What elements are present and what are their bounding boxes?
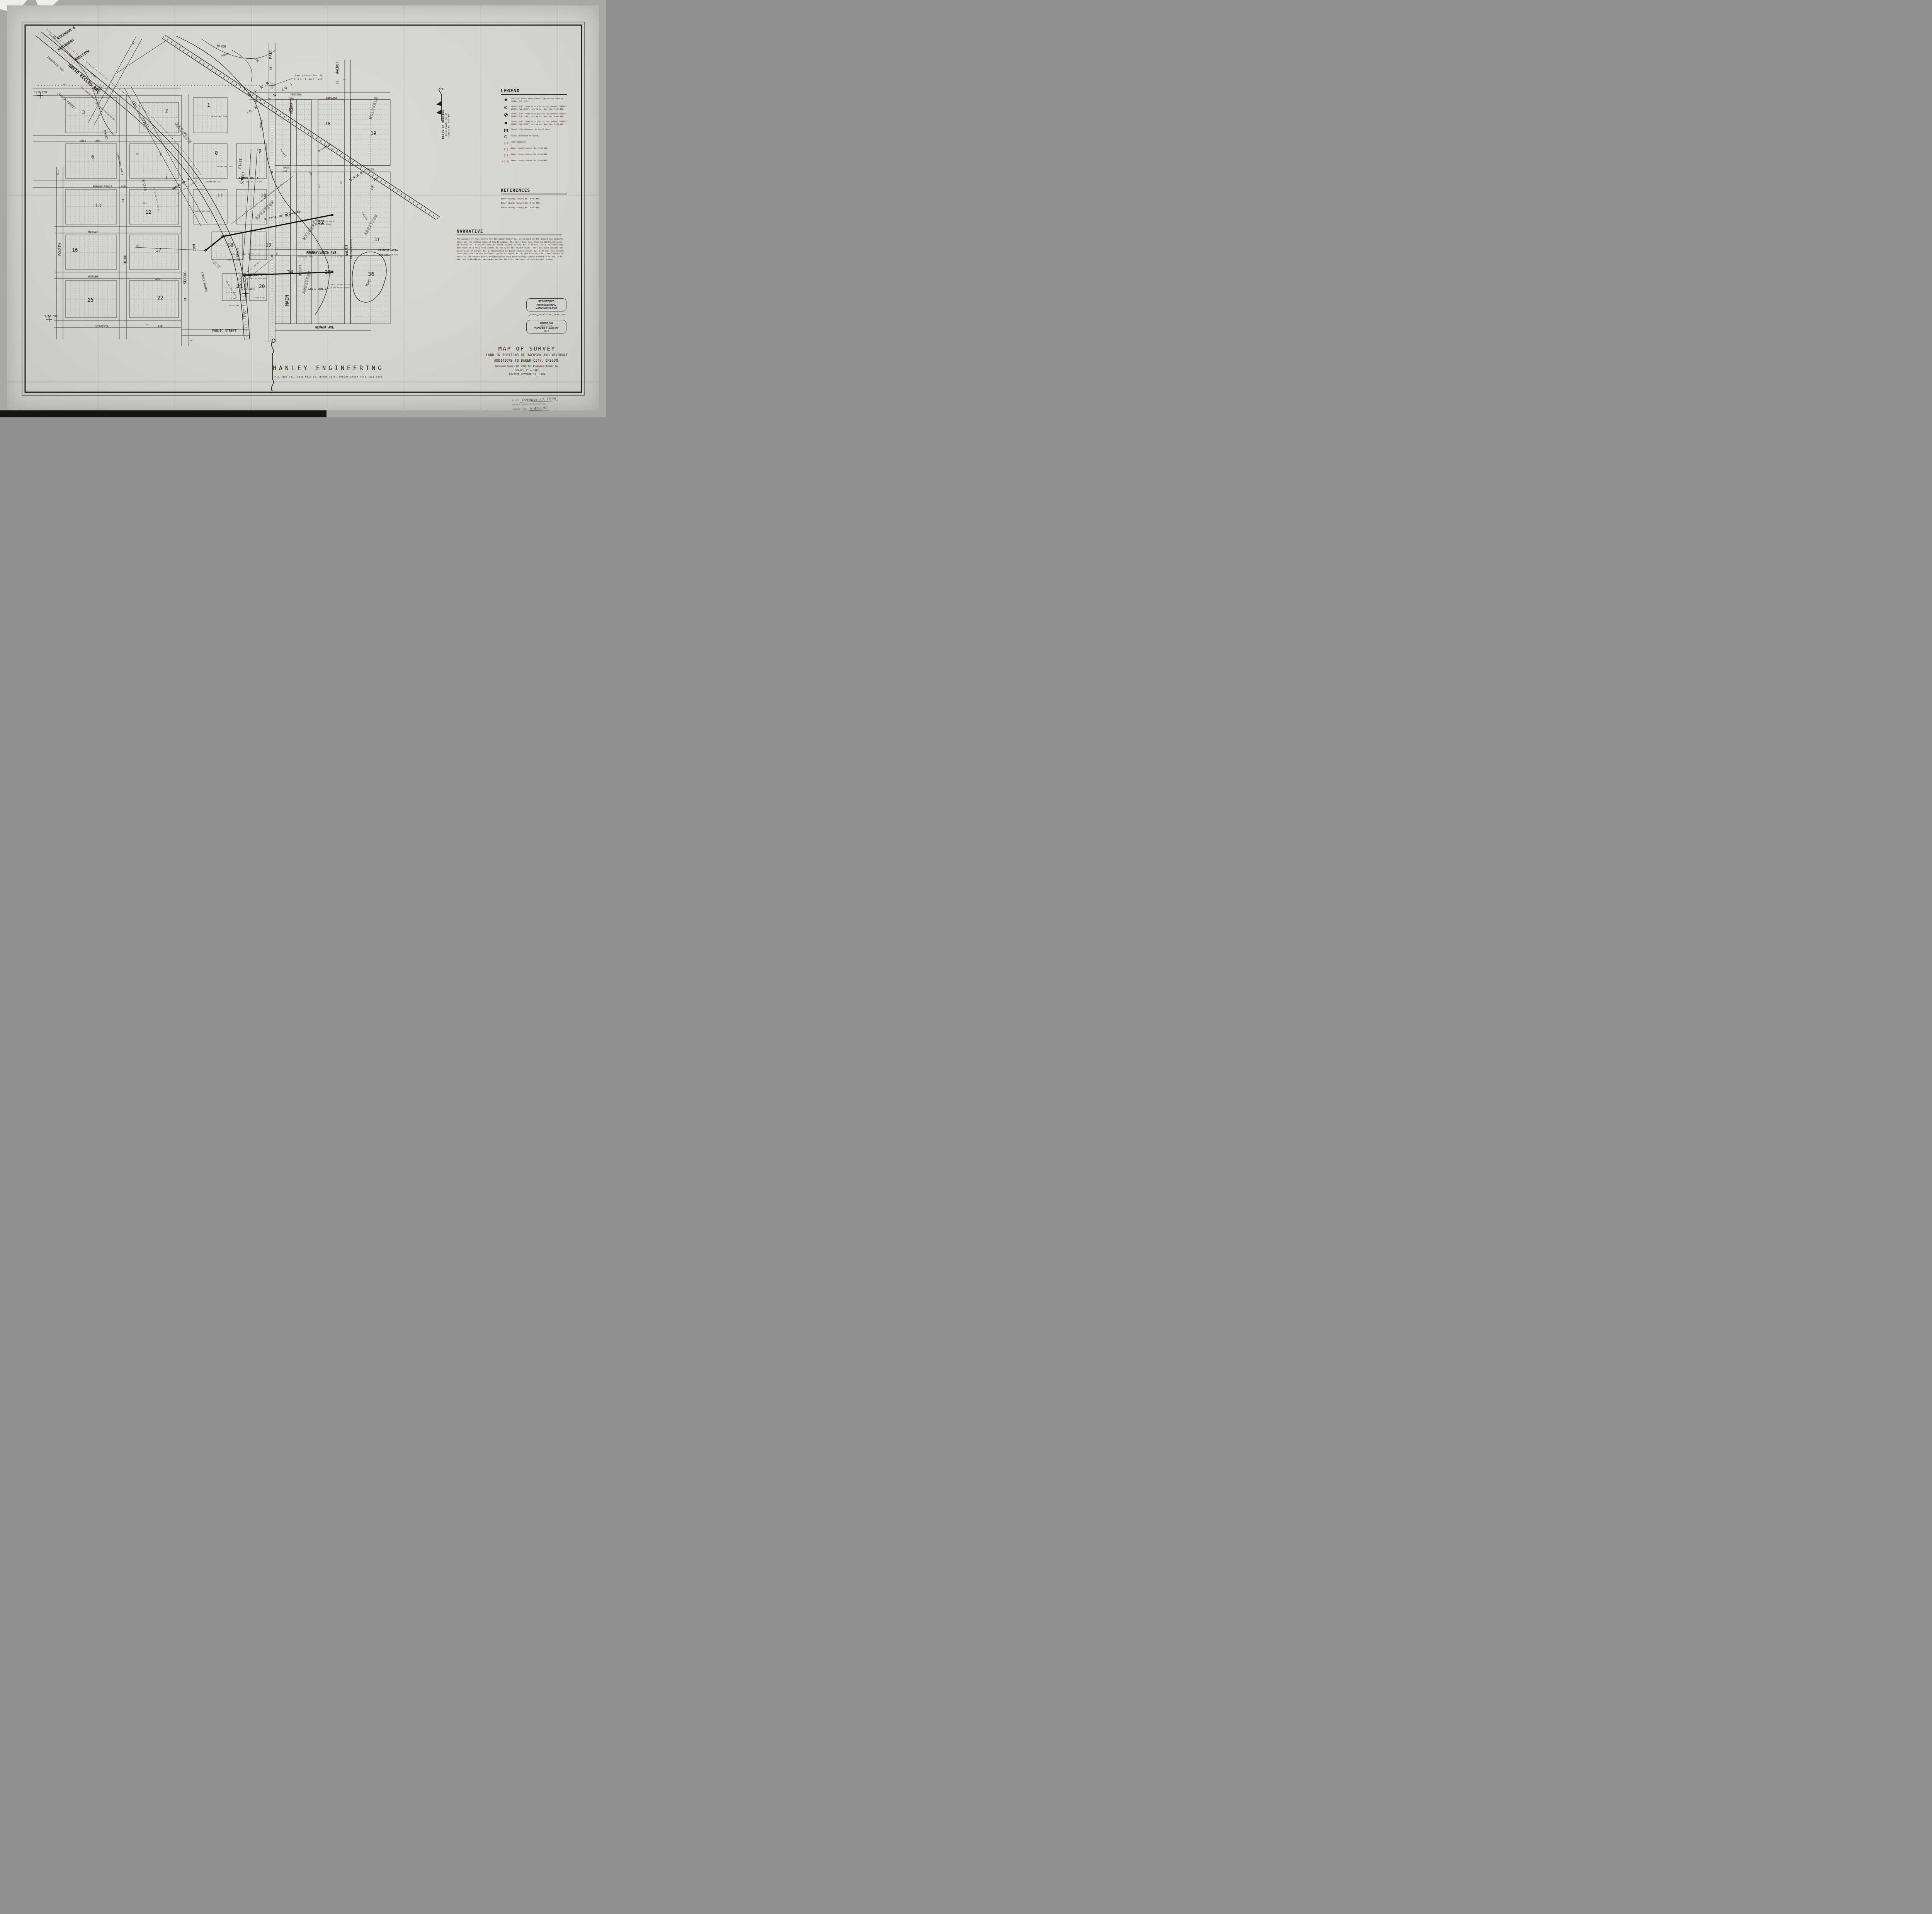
- map-label: N. 77°19' 20" E., 460.80': [264, 210, 302, 221]
- map-label: U.P.R.R.: [349, 170, 365, 182]
- filing-stamp: FILED October 13, 1999 BAKER COUNTY SURV…: [512, 396, 586, 412]
- map-label: VACATED ORD. 2054: [194, 210, 211, 212]
- uprr-ties: [163, 37, 438, 218]
- map-label: 13: [95, 202, 101, 208]
- map-label: 70': [342, 79, 345, 81]
- basis-title: BASIS OF BEARING: [442, 92, 445, 157]
- filed-date-handwritten: October 13, 1999: [520, 397, 558, 403]
- david-eccles-road-edge: [36, 36, 244, 340]
- map-label: 31: [374, 237, 379, 242]
- road-hatching: [38, 34, 247, 340]
- map-label: 17: [288, 107, 293, 112]
- map-label: 1/16 COR.: [44, 315, 59, 318]
- legend-item: Found, monument as noted.: [501, 134, 571, 138]
- stamp-lower-frame: OREGON JULY, 13, 1979 THOMAS J. HANLEY 1…: [526, 320, 566, 333]
- map-label: 6: [91, 154, 94, 160]
- map-label: VIRGINIA: [95, 325, 109, 328]
- map-label: 1/16 COR.: [34, 91, 49, 94]
- map-label: (NON-CONSTRUCTED): [378, 253, 398, 256]
- map-label: (NON-CONSTRUCTED): [350, 239, 352, 260]
- references-panel: REFERENCES Baker County Survey No. 9-40-…: [501, 188, 571, 210]
- legend-item: [ ]Baker County Survey No. 9-40-486.: [501, 153, 571, 157]
- map-label: (100'): [340, 180, 342, 185]
- map-label: THIRD: [123, 255, 127, 265]
- filing-office: BAKER COUNTY SURVEYOR: [512, 402, 586, 406]
- legend-symbol-circledot: [501, 105, 511, 109]
- map-label: ST.: [56, 170, 60, 175]
- map-label: INDIANA: [326, 97, 337, 100]
- map-label: DAVID: [103, 130, 109, 140]
- map-label: 60': [276, 252, 278, 255]
- legend-item: Found, 5/8" rebar with plastic cap marke…: [501, 120, 571, 126]
- map-label: 33': [146, 324, 149, 326]
- map-label: PENNSYLVANIA: [378, 249, 398, 252]
- firm-address: P.O. Box 701, 2043 Main St. BAKER CITY, …: [247, 376, 410, 378]
- map-label: 19: [371, 131, 376, 136]
- basis-line2: Survey No. 9-40-490.: [447, 92, 450, 157]
- legend-item-text: Found, 5/8" rebar with plastic cap marke…: [511, 120, 571, 126]
- reference-item: Baker County Survey No. 9-40-490.: [501, 206, 571, 210]
- map-label: SECOND: [183, 271, 187, 284]
- narrative-text: The purpose of this survey for Ellingson…: [457, 238, 563, 261]
- legend-title: LEGEND: [501, 88, 571, 94]
- stamp-line3: LAND SURVEYOR: [527, 306, 565, 310]
- pond-outline: [352, 252, 386, 302]
- map-label: VACATED ORD. 1728: [211, 116, 227, 117]
- reference-item: Baker County Survey No. 9-40-486.: [501, 201, 571, 205]
- map-label: ((20.00')): [226, 259, 239, 261]
- map-label: NEVADA: [88, 230, 98, 233]
- map-label: 18: [227, 242, 233, 248]
- legend-symbol-dot: [501, 97, 511, 101]
- survey-no-handwritten: 9-40-502: [528, 406, 549, 411]
- map-label: 60': [136, 153, 139, 155]
- map-label: CARY: [131, 100, 138, 109]
- map-label: FIRST: [243, 309, 247, 320]
- legend-symbol-text: (( )): [501, 159, 511, 163]
- surveyor-signature: [526, 311, 566, 318]
- map-label: PENNSYLVANIA: [93, 185, 112, 188]
- map-label: POND: [365, 279, 371, 287]
- map-label: (100'): [165, 175, 167, 180]
- map-label: EAST, 330.37': [308, 288, 330, 291]
- map-label: ADDITION: [74, 49, 90, 62]
- map-label: ST.: [336, 79, 339, 84]
- map-label: 60': [184, 133, 187, 134]
- map-label: MAIN: [269, 50, 272, 59]
- map-label: PUBLIC STREET: [212, 329, 236, 333]
- map-label: V. 117 P. 168: [331, 256, 342, 258]
- firm-block: HANLEY ENGINEERING P.O. Box 701, 2043 Ma…: [247, 365, 410, 378]
- map-label: V.132 P.349: [254, 297, 265, 299]
- stamp-number: 1817: [527, 330, 565, 332]
- legend-item: (( ))Baker County Survey No. 9-40-490.: [501, 159, 571, 163]
- firm-name: HANLEY ENGINEERING: [247, 365, 410, 372]
- map-label: 23: [87, 297, 94, 303]
- map-label: 20: [259, 283, 265, 289]
- legend-item-text: Found, 5/8" rebar with plastic cap marke…: [511, 105, 571, 111]
- map-label: 31: [372, 177, 378, 182]
- map-label: PARCEL NO. A: [172, 177, 190, 191]
- map-label: WABASH: [88, 275, 98, 278]
- map-label: (TRUCK ROUTE): [200, 272, 208, 293]
- map-subtitle-1: LAND IN PORTIONS OF JACKSON AND WILOVALE: [478, 354, 577, 357]
- map-label: VACATED ORD. 2054: [206, 181, 222, 183]
- stamp-state: OREGON: [527, 322, 565, 325]
- map-label: SLOUGH: [90, 72, 97, 78]
- map-label: (50'): [142, 202, 147, 204]
- map-label: RESORT: [299, 265, 302, 276]
- map-label: 34: [287, 269, 293, 275]
- map-label: V.132 P.349: [226, 292, 236, 294]
- map-label: OHIO: [283, 166, 289, 169]
- map-label: PACIFIC: [361, 212, 368, 221]
- map-label: AVE.: [283, 170, 289, 172]
- legend-item: Found, 5/8" rebar with plastic cap marke…: [501, 105, 571, 111]
- map-label: ST.: [122, 197, 125, 202]
- map-label: AVE.: [95, 140, 102, 143]
- legend-item-text: Found, monument as noted.: [511, 134, 539, 137]
- stamp-line2: PROFESSIONAL: [527, 303, 565, 307]
- legend-item-text: Found, city monument in steel case.: [511, 128, 551, 131]
- map-label: 2: [165, 108, 168, 114]
- map-label: 1: [207, 102, 210, 108]
- map-label: VACATED ORD. 2054: [298, 256, 313, 258]
- map-label: 33: [285, 211, 291, 218]
- map-label: OHIO: [367, 168, 374, 171]
- map-label: OHIO: [80, 140, 86, 143]
- map-label: 19: [265, 242, 272, 248]
- rose-street: [88, 37, 142, 124]
- uprr-track: [165, 35, 440, 217]
- surveyed-note: Surveyed August 19, 1999 for Ellingson T…: [478, 365, 577, 367]
- map-label: 9: [259, 148, 262, 154]
- references-title: REFERENCES: [501, 188, 571, 193]
- map-label: WALNUT: [335, 61, 339, 74]
- map-label: WILOVALE: [302, 218, 320, 241]
- map-subtitle-2: ADDITIONS TO BAKER CITY, OREGON.: [478, 359, 577, 362]
- legend-symbol-square: [501, 120, 511, 124]
- legend-item: Set 5/8" rebar with plastic cap marked "…: [501, 97, 571, 103]
- map-label: MAIN: [284, 295, 290, 306]
- map-label: VACATED ORD. 1638: [229, 305, 245, 306]
- map-label: (TRUCK ROUTE): [56, 92, 77, 111]
- map-label: VACATED ORD. 1728: [217, 166, 233, 168]
- legend-symbol-text: ( ): [501, 141, 511, 145]
- map-label: OLD: [53, 36, 57, 40]
- map-label: 22: [157, 295, 163, 301]
- map-label: 1/16 COR.: [240, 288, 255, 291]
- legend-item-text: Baker County Survey No. 9-40-466.: [511, 147, 548, 150]
- map-label: (25'): [318, 184, 320, 189]
- legend-symbol-opensquare: [501, 128, 511, 132]
- map-label: PACIFIC: [280, 149, 287, 158]
- map-label: (N. 58° 16' 32" E., 412.00')): [260, 181, 284, 202]
- legend-item-text: Baker County Survey No. 9-40-490.: [511, 159, 548, 162]
- references-rule: [501, 194, 567, 194]
- stamp-upper-frame: REGISTERED PROFESSIONAL LAND SURVEYOR: [526, 298, 566, 311]
- map-label: ((S. 31° 43' 30" E.,)): [231, 253, 259, 255]
- survey-no-label: SURVEY NO.: [512, 408, 527, 410]
- map-label: 7: [159, 151, 162, 157]
- map-label: FOURTH: [58, 243, 62, 256]
- legend-symbol-quarter: [501, 112, 511, 117]
- map-label: INDUSTRIAL AVE.: [46, 56, 65, 73]
- legend-symbol-opencircle: [501, 134, 511, 138]
- revised-note: REVISED OCTOBER 15, 1999: [478, 373, 577, 376]
- map-title: MAP OF SURVEY: [478, 345, 577, 352]
- map-label: ROAD: [192, 244, 196, 252]
- map-label: NEVADA AVE.: [315, 326, 336, 329]
- map-label: 12: [145, 209, 151, 215]
- scanned-survey-map: ATKINSON &HENINGERSADDITIONINDUSTRIAL AV…: [0, 0, 606, 417]
- legend-panel: LEGEND Set 5/8" rebar with plastic cap m…: [501, 88, 571, 165]
- map-label: ST.: [131, 39, 136, 45]
- map-label: 60': [136, 245, 139, 247]
- map-scale: Scale: 1" = 100': [478, 369, 577, 372]
- map-label: BA. CO. SURV. NO. 9-40-486: [243, 277, 266, 279]
- map-label: AVE.: [155, 277, 162, 281]
- legend-item-text: Found, 5/8" rebar with plastic cap marke…: [511, 112, 571, 118]
- map-label: T. 9 S., R. 40 E., W.M.: [294, 78, 323, 80]
- filed-label: FILED: [512, 399, 519, 402]
- map-label: IN. 31° 43' 30" W. 979.19']: [153, 187, 160, 213]
- map-label: 16: [72, 247, 78, 253]
- legend-item: ( )Plat distance.: [501, 141, 571, 145]
- legend-item-text: Set 5/8" rebar with plastic cap marked "…: [511, 97, 571, 103]
- narrative-panel: NARRATIVE The purpose of this survey for…: [457, 229, 563, 261]
- map-label: 36: [368, 271, 374, 277]
- map-label: 60': [63, 83, 66, 85]
- map-label: East ¼ Corner Sec. 20,: [295, 74, 323, 77]
- narrative-title: NARRATIVE: [457, 229, 563, 234]
- stamp-line1: REGISTERED: [527, 300, 565, 303]
- legend-symbol-text: { }: [501, 147, 511, 151]
- map-label: AVE.: [308, 171, 314, 177]
- map-label: of the Powder River.: [330, 287, 351, 289]
- map-label: AVE.: [121, 185, 128, 188]
- map-label: DR.: [254, 58, 260, 64]
- map-label: 3: [82, 109, 85, 115]
- map-label: 17: [155, 247, 162, 253]
- map-label: 11: [217, 192, 223, 198]
- basis-of-bearing: BASIS OF BEARING Baker County Map of Sur…: [417, 117, 482, 132]
- uprr-track: [162, 38, 436, 219]
- map-label: FIRST: [238, 158, 243, 169]
- legend-item: { }Baker County Survey No. 9-40-466.: [501, 147, 571, 151]
- legend-symbol-text: [ ]: [501, 153, 511, 157]
- map-label: (INDUSTRIAL AVE.): [116, 152, 124, 175]
- surveyor-stamp: REGISTERED PROFESSIONAL LAND SURVEYOR OR…: [526, 298, 566, 333]
- map-label: U.P.R.R.: [248, 78, 274, 97]
- map-label: AVE.: [158, 325, 164, 328]
- map-label: WALNUT: [345, 245, 349, 256]
- map-label: ST.: [269, 65, 272, 70]
- powder-river-oxbow: [232, 50, 252, 81]
- legend-item: Found, city monument in steel case.: [501, 128, 571, 132]
- map-label: AVE.: [371, 184, 374, 190]
- scan-black-strip: [0, 410, 327, 417]
- stamp-name: THOMAS J. HANLEY: [527, 327, 565, 330]
- reference-item: Baker County Survey No. 9-40-466.: [501, 197, 571, 201]
- legend-item-text: Baker County Survey No. 9-40-486.: [511, 153, 548, 156]
- map-label: 50': [190, 340, 193, 342]
- title-block: MAP OF SURVEY LAND IN PORTIONS OF JACKSO…: [478, 345, 577, 376]
- map-label: RIVER: [217, 44, 226, 48]
- map-label: 68.1' Offset to the ℄: [331, 284, 353, 286]
- map-label: ST.: [184, 296, 187, 301]
- map-label: 18: [325, 121, 330, 126]
- map-label: 35: [325, 269, 331, 275]
- map-label: V.115 P.599: [226, 298, 236, 299]
- legend-rule: [501, 94, 567, 95]
- map-label: ATKINSON &: [56, 26, 76, 41]
- map-label: 8: [215, 150, 218, 156]
- map-label: PENNSYLVANIA AVE.: [306, 251, 338, 255]
- legend-item: Found, 5/8" rebar with plastic cap marke…: [501, 112, 571, 118]
- legend-item-text: Plat distance.: [511, 141, 527, 143]
- basis-line1: Baker County Map of: [445, 92, 447, 157]
- map-label: BA. CO. SURV. NO. 9-40-466: [177, 180, 197, 194]
- river-drive: [201, 39, 275, 59]
- narrative-rule: [457, 235, 562, 235]
- rail-spur: [116, 41, 166, 73]
